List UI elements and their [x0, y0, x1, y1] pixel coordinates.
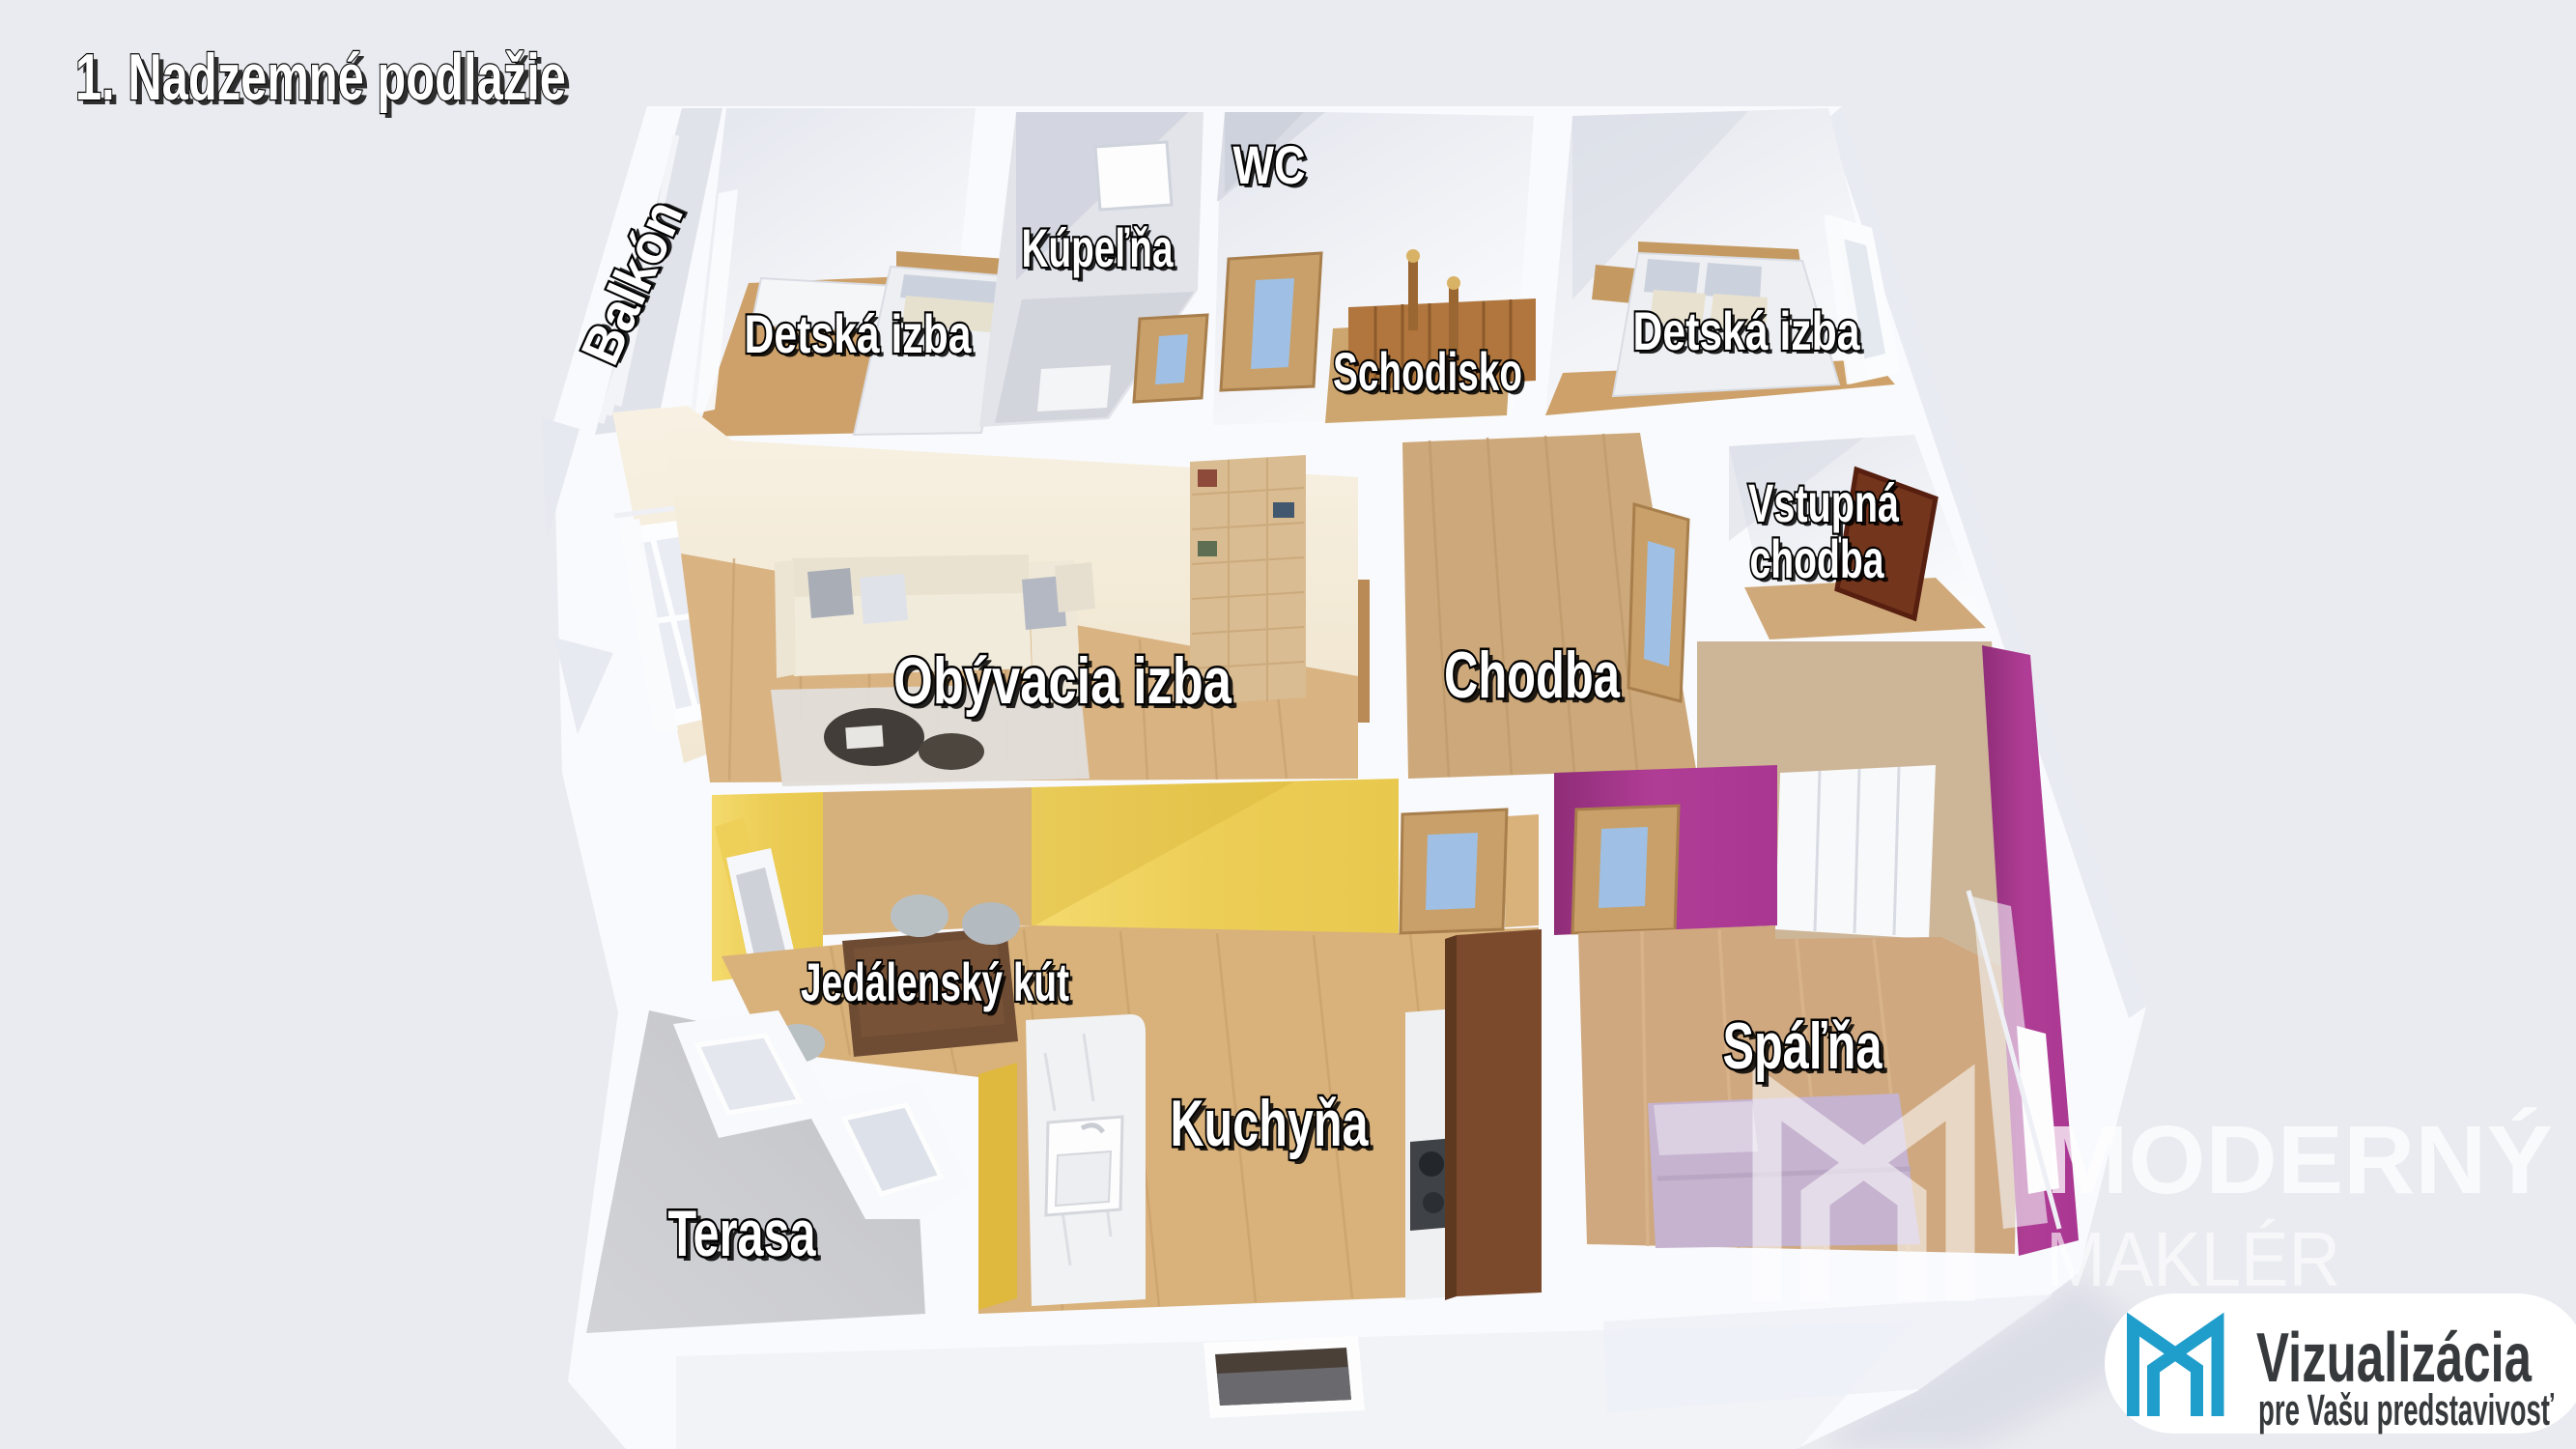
svg-text:Vstupná: Vstupná — [1748, 472, 1900, 533]
svg-text:Terasa: Terasa — [668, 1197, 817, 1270]
svg-text:Obývacia izba: Obývacia izba — [893, 644, 1232, 718]
svg-text:Chodba: Chodba — [1444, 639, 1621, 712]
svg-text:Detská izba: Detská izba — [745, 303, 973, 364]
svg-text:chodba: chodba — [1750, 528, 1885, 589]
svg-text:Kuchyňa: Kuchyňa — [1171, 1087, 1370, 1160]
svg-text:Spáľňa: Spáľňa — [1723, 1009, 1883, 1083]
svg-text:pre Vašu predstavivosť: pre Vašu predstavivosť — [2258, 1385, 2554, 1435]
svg-text:Schodisko: Schodisko — [1333, 341, 1522, 402]
svg-text:Jedálenský kút: Jedálenský kút — [801, 952, 1069, 1012]
svg-text:MAKLÉR: MAKLÉR — [2046, 1216, 2340, 1302]
svg-text:1. Nadzemné podlažie: 1. Nadzemné podlažie — [75, 41, 566, 114]
svg-text:Kúpeľňa: Kúpeľňa — [1022, 217, 1175, 278]
svg-text:Detská izba: Detská izba — [1633, 300, 1861, 361]
svg-text:MODERNÝ: MODERNÝ — [2046, 1106, 2553, 1214]
svg-text:WC: WC — [1233, 134, 1306, 195]
